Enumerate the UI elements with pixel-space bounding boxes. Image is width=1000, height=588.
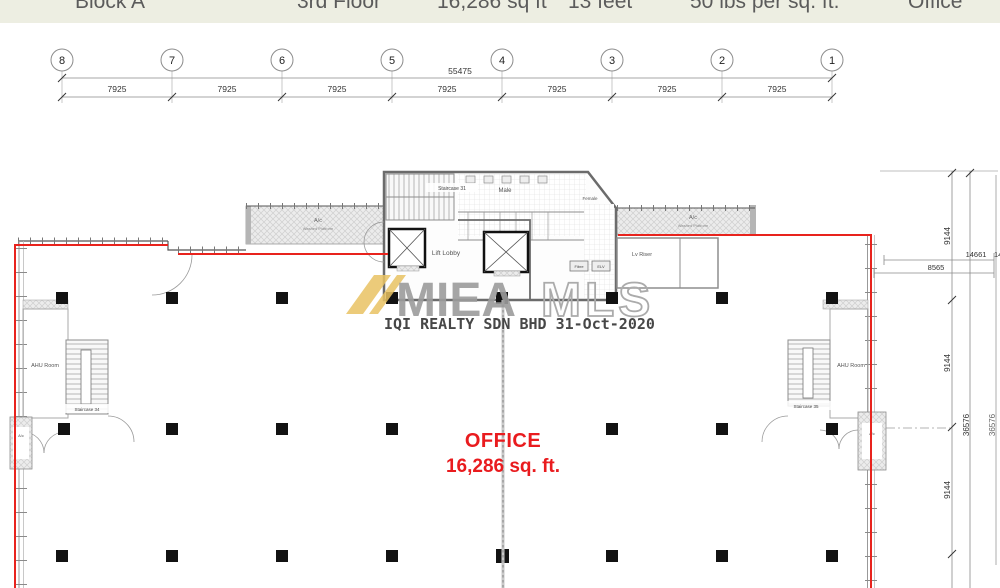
grid-bubble-6: 6 [279, 55, 285, 67]
spec-use: Office [908, 0, 962, 12]
grid-dimension-lines: 55475 7925 7925 7925 7925 7925 7925 7925 [58, 66, 836, 101]
dim-bay: 7925 [328, 84, 347, 94]
floorplan-drawing: 8 7 6 5 4 3 2 1 55475 7925 7925 [0, 0, 1000, 588]
spec-floor: 3rd Floor [297, 0, 381, 12]
dim-edge-partial: 14661 [994, 250, 1000, 259]
spec-area: 16,286 sq ft [437, 0, 547, 12]
lv-riser-label: Lv Riser [632, 252, 652, 258]
dim-bay: 7925 [768, 84, 787, 94]
dim-14661: 14661 [966, 250, 987, 259]
ac-platform-left-sublabel: Washed Platform [303, 226, 334, 231]
right-dimensions: 9144 9144 9144 36576 36576 14661 8565 14… [874, 169, 1000, 588]
dim-right-bay-2: 9144 [943, 354, 952, 372]
dim-total-width: 55475 [448, 66, 472, 76]
dim-bay: 7925 [438, 84, 457, 94]
ahu-room-left-label: AHU Room [31, 363, 59, 369]
grid-bubble-2: 2 [719, 55, 725, 67]
spec-floor-load: 50 lbs per sq. ft. [690, 0, 839, 12]
ac-platform-right-label: A/c [689, 215, 697, 221]
grid-bubble-1: 1 [829, 55, 835, 67]
grid-bubble-5: 5 [389, 55, 395, 67]
dim-bay: 7925 [218, 84, 237, 94]
office-title: OFFICE [465, 430, 541, 452]
grid-bubble-7: 7 [169, 55, 175, 67]
lift-shaft-1 [389, 229, 425, 271]
grid-bubble-8: 8 [59, 55, 65, 67]
lift-shaft-2 [484, 232, 528, 276]
dim-right-bay-1: 9144 [943, 227, 952, 245]
dim-8565: 8565 [928, 263, 945, 272]
spec-header-bar: Block A 3rd Floor 16,286 sq ft 13 feet 5… [0, 0, 1000, 23]
spec-height: 13 feet [568, 0, 632, 12]
dim-bay: 7925 [108, 84, 127, 94]
staircase-34-label: Staircase 34 [74, 407, 100, 412]
lift-lobby-label: Lift Lobby [432, 250, 461, 257]
ac-platform-right-sublabel: Washed Platform [678, 223, 709, 228]
dim-right-total: 36576 [962, 413, 971, 436]
ac-platform-right: A/c Washed Platform [617, 205, 756, 235]
office-area-value: 16,286 sq. ft. [446, 456, 560, 477]
spec-block: Block A [75, 0, 145, 12]
watermark-agency-line: IQI REALTY SDN BHD 31-Oct-2020 [384, 315, 655, 333]
dim-bay: 7925 [658, 84, 677, 94]
dim-bay: 7925 [548, 84, 567, 94]
grid-bubble-3: 3 [609, 55, 615, 67]
floor-plan-page: Block A 3rd Floor 16,286 sq ft 13 feet 5… [0, 0, 1000, 588]
ahu-room-right-label: AHU Room [837, 363, 865, 369]
left-wing: AHU Room Staircase 34 A/c [10, 255, 192, 469]
staircase-35-label: Staircase 35 [793, 404, 819, 409]
female-toilet-label: Female [582, 196, 598, 201]
staircase-31-label: Staircase 31 [438, 186, 466, 192]
grid-bubble-4: 4 [499, 55, 505, 67]
dim-right-bay-3: 9144 [943, 481, 952, 499]
ac-room-left-label: A/c [18, 433, 24, 438]
dim-edge-total: 36576 [988, 413, 997, 436]
ac-platform-left: A/c Washed Platform [246, 206, 390, 244]
ac-platform-left-label: A/c [314, 218, 322, 224]
elv-room-label: ELV [597, 264, 605, 269]
fibre-room-label: Fibre [574, 264, 584, 269]
male-toilet-label: Male [498, 188, 512, 194]
